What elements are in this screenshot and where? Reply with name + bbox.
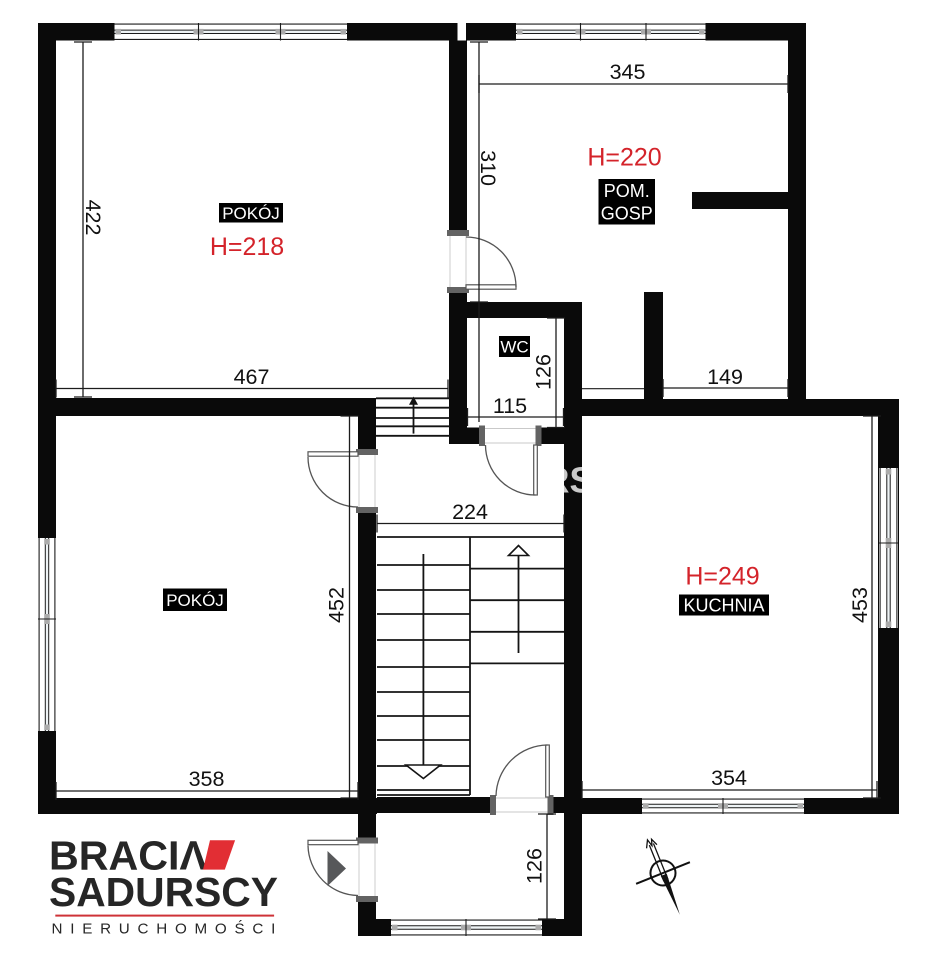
svg-text:224: 224 — [452, 500, 488, 524]
svg-text:358: 358 — [189, 767, 225, 791]
svg-text:467: 467 — [234, 365, 270, 389]
svg-text:126: 126 — [523, 848, 547, 884]
svg-text:345: 345 — [610, 60, 646, 84]
svg-text:115: 115 — [493, 394, 527, 418]
svg-text:POM.: POM. — [604, 181, 650, 201]
svg-text:SADURSCY: SADURSCY — [442, 460, 644, 501]
svg-text:SADURSCY: SADURSCY — [49, 869, 278, 915]
svg-text:WC: WC — [500, 338, 528, 357]
svg-text:149: 149 — [707, 365, 743, 389]
svg-text:NIERUCHOMOŚCI: NIERUCHOMOŚCI — [52, 920, 284, 938]
svg-text:H=220: H=220 — [587, 144, 661, 172]
svg-text:422: 422 — [81, 200, 105, 236]
svg-text:H=249: H=249 — [685, 563, 759, 591]
svg-text:POKÓJ: POKÓJ — [166, 591, 224, 610]
svg-text:310: 310 — [476, 150, 500, 186]
svg-text:H=218: H=218 — [210, 233, 284, 261]
svg-text:POKÓJ: POKÓJ — [222, 204, 280, 223]
svg-text:KUCHNIA: KUCHNIA — [683, 596, 764, 616]
svg-text:126: 126 — [532, 354, 556, 390]
svg-text:GOSP: GOSP — [601, 204, 653, 224]
svg-text:453: 453 — [848, 587, 872, 623]
svg-text:354: 354 — [711, 766, 747, 790]
svg-text:452: 452 — [325, 587, 349, 623]
